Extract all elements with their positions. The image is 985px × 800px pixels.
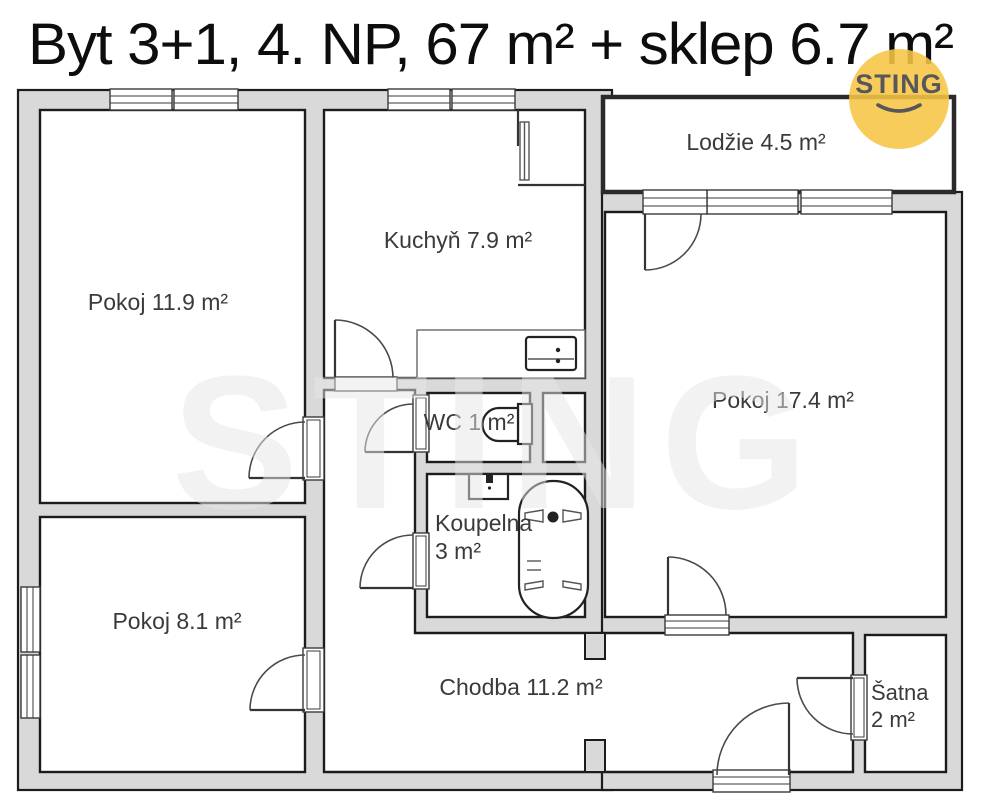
floor-plan-page: Pokoj 11.9 m² Kuchyň 7.9 m² Lodžie 4.5 m…: [0, 0, 985, 800]
page-title: Byt 3+1, 4. NP, 67 m² + sklep 6.7 m²: [28, 12, 954, 77]
label-lodzie: Lodžie 4.5 m²: [686, 129, 826, 155]
label-pokoj-11-9: Pokoj 11.9 m²: [88, 289, 229, 315]
room-pokoj-8-1: [40, 517, 305, 772]
label-satna: Šatna: [871, 680, 929, 705]
window-pokoj-11-9: [110, 89, 238, 110]
label-kuchyn: Kuchyň 7.9 m²: [384, 227, 533, 253]
label-chodba: Chodba 11.2 m²: [439, 674, 603, 700]
logo-circle: [849, 49, 949, 149]
window-pokoj-8-1: [21, 587, 40, 718]
window-kuchyn: [388, 89, 515, 110]
watermark-text: STING: [172, 337, 823, 549]
floor-plan-canvas: Pokoj 11.9 m² Kuchyň 7.9 m² Lodžie 4.5 m…: [0, 0, 985, 800]
wall-stub-top: [585, 633, 605, 659]
wall-stub-bottom: [585, 740, 605, 772]
label-satna-area: 2 m²: [871, 707, 915, 732]
label-pokoj-8-1: Pokoj 8.1 m²: [112, 608, 241, 634]
logo-text: STING: [855, 69, 943, 99]
sting-logo: STING: [849, 49, 949, 149]
